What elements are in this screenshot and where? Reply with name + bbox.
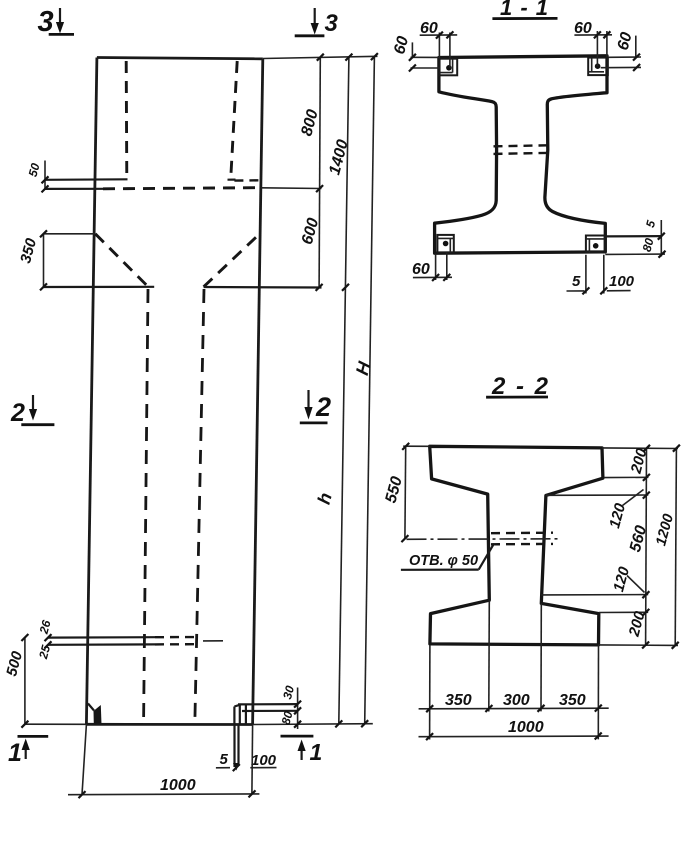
svg-text:2: 2 (315, 392, 331, 422)
svg-text:350: 350 (445, 692, 472, 709)
svg-text:1 - 1: 1 - 1 (500, 0, 549, 20)
svg-text:3: 3 (325, 10, 339, 37)
svg-text:100: 100 (609, 273, 635, 290)
svg-text:1: 1 (8, 739, 22, 767)
svg-text:ОТВ. φ 50: ОТВ. φ 50 (409, 553, 478, 569)
svg-text:5: 5 (572, 273, 581, 290)
svg-text:100: 100 (251, 752, 277, 769)
svg-text:60: 60 (412, 261, 430, 278)
svg-text:1000: 1000 (508, 719, 544, 736)
svg-text:1000: 1000 (160, 777, 196, 794)
svg-text:300: 300 (503, 692, 530, 709)
svg-text:2: 2 (10, 399, 25, 427)
svg-text:1: 1 (310, 739, 323, 765)
svg-text:350: 350 (559, 692, 586, 709)
svg-text:5: 5 (220, 751, 229, 768)
